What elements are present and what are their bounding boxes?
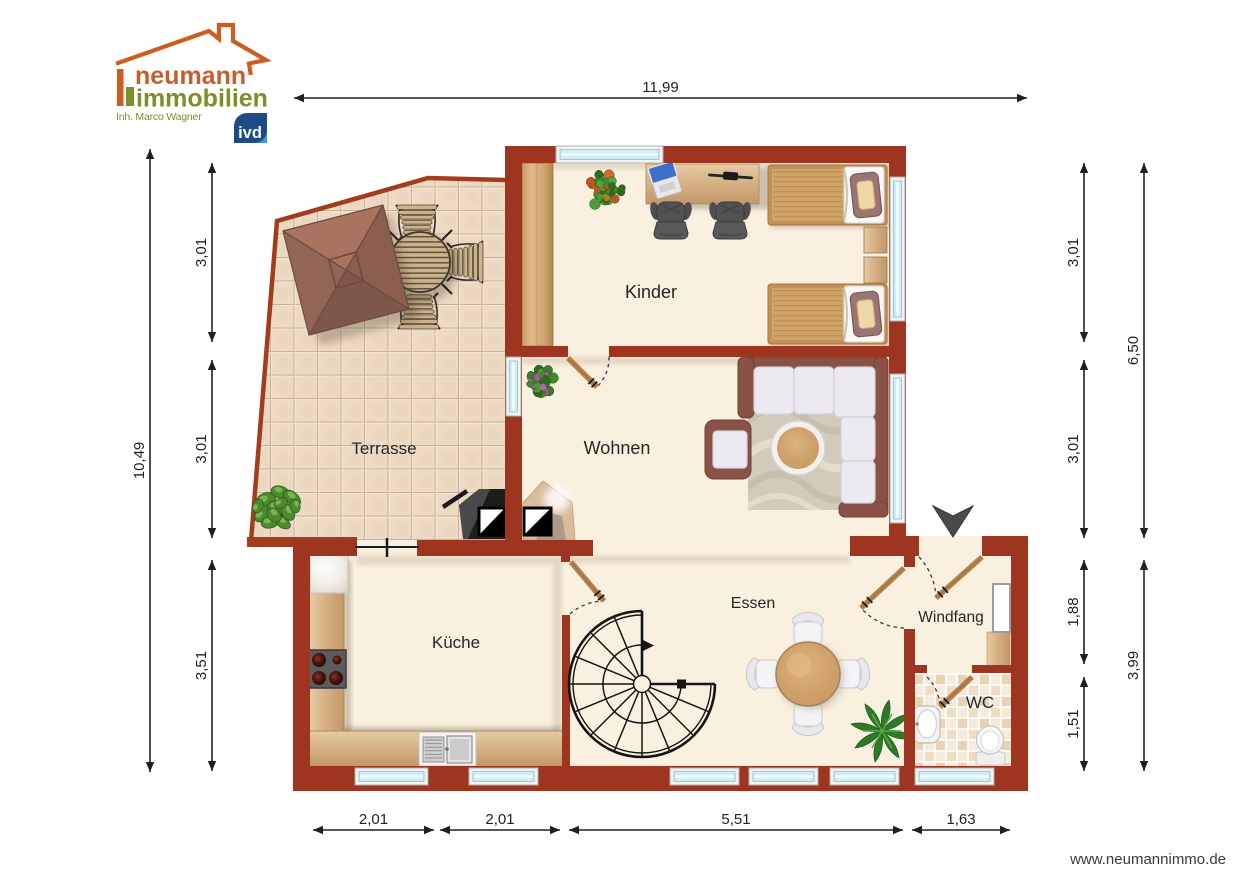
svg-text:Terrasse: Terrasse xyxy=(351,439,416,458)
svg-text:3,51: 3,51 xyxy=(193,651,210,680)
svg-text:Küche: Küche xyxy=(432,633,480,652)
svg-text:2,01: 2,01 xyxy=(485,811,514,828)
svg-text:ivd: ivd xyxy=(238,124,262,142)
svg-text:Essen: Essen xyxy=(731,595,775,612)
svg-text:WC: WC xyxy=(966,693,994,712)
svg-text:5,51: 5,51 xyxy=(721,811,750,828)
svg-text:3,01: 3,01 xyxy=(1065,434,1082,463)
svg-text:1,88: 1,88 xyxy=(1065,597,1082,626)
svg-text:Wohnen: Wohnen xyxy=(584,438,651,458)
svg-text:10,49: 10,49 xyxy=(131,442,148,480)
svg-text:11,99: 11,99 xyxy=(642,79,678,96)
svg-text:www.neumannimmo.de: www.neumannimmo.de xyxy=(1069,851,1226,868)
svg-text:Windfang: Windfang xyxy=(918,609,983,626)
svg-text:3,01: 3,01 xyxy=(193,434,210,463)
svg-text:2,01: 2,01 xyxy=(359,811,388,828)
svg-text:3,01: 3,01 xyxy=(1065,238,1082,267)
svg-text:6,50: 6,50 xyxy=(1125,336,1142,365)
svg-text:3,99: 3,99 xyxy=(1125,651,1142,680)
svg-text:Inh. Marco Wagner: Inh. Marco Wagner xyxy=(116,111,202,123)
svg-text:1,63: 1,63 xyxy=(946,811,975,828)
svg-text:immobilien: immobilien xyxy=(136,85,268,113)
svg-text:1,51: 1,51 xyxy=(1065,709,1082,738)
svg-text:Kinder: Kinder xyxy=(625,282,677,302)
svg-text:3,01: 3,01 xyxy=(193,238,210,267)
